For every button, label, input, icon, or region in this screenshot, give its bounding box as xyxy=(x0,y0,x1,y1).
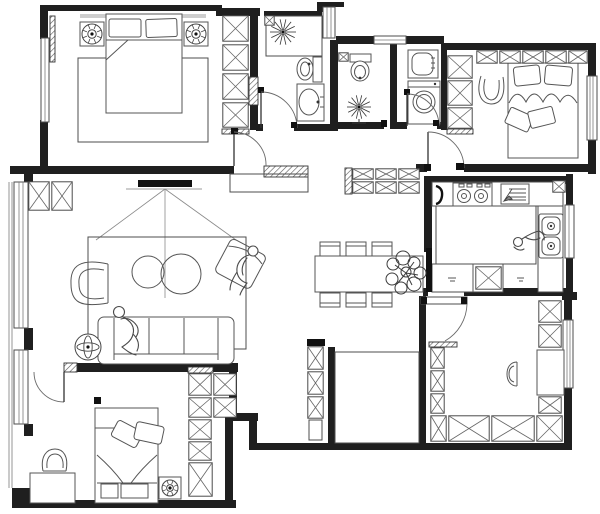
washbasin xyxy=(408,50,438,78)
column-cap xyxy=(307,339,325,346)
laundry-nook xyxy=(408,50,440,124)
double-bed xyxy=(95,408,165,503)
sofa xyxy=(98,317,234,364)
double-bed xyxy=(504,63,578,158)
dining-chairs-top xyxy=(320,242,392,256)
hall-storage-column xyxy=(308,347,323,418)
tv-on-wall xyxy=(138,180,192,187)
sliding-door-leaf xyxy=(426,248,432,292)
washing-machine xyxy=(408,81,440,124)
floor-lamp-symbol xyxy=(75,334,101,360)
kitchen-window-right xyxy=(565,205,574,258)
gas-stove xyxy=(453,183,492,206)
floor-plan-canvas xyxy=(0,0,600,514)
bedroom2-wardrobe xyxy=(448,56,472,128)
desk xyxy=(30,473,75,503)
desk xyxy=(537,350,564,395)
toilet xyxy=(297,57,322,82)
cutting-board xyxy=(501,184,529,204)
double-sink xyxy=(539,214,563,258)
floor-plan-drawing xyxy=(0,0,600,514)
bedroom2-window-right xyxy=(587,76,597,140)
bedroom3-window-left xyxy=(14,350,28,424)
kitchen-appliance-cell xyxy=(476,267,501,289)
counter-top xyxy=(432,182,563,206)
dining-chairs-bottom xyxy=(320,293,392,307)
bedroom2-overhead-cabinets xyxy=(477,51,587,63)
double-bed xyxy=(106,14,182,113)
hall-window-top xyxy=(374,36,406,44)
study-bookcase-bottom xyxy=(431,416,562,441)
study-bookcase-left xyxy=(431,348,444,413)
door-jamb-cap xyxy=(381,120,387,127)
pedestal-sink xyxy=(297,84,324,121)
entry-window-top xyxy=(323,7,335,38)
master-window-left xyxy=(41,38,49,122)
bath1-corner-shelf xyxy=(265,16,274,25)
kitchen-flue-box xyxy=(553,181,565,192)
bath2-corner-shelf xyxy=(339,53,348,61)
